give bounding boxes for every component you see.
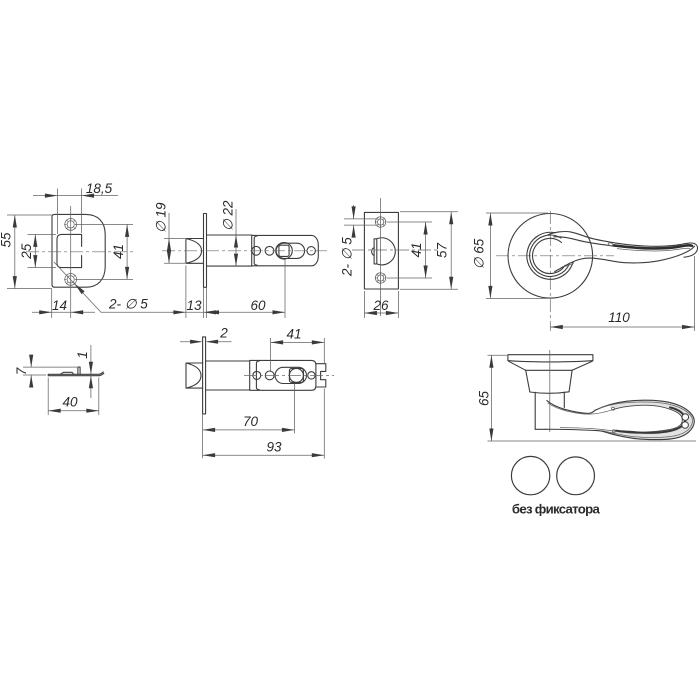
svg-text:60: 60 [250,298,266,313]
svg-text:55: 55 [0,232,14,248]
svg-text:14: 14 [52,298,67,313]
svg-text:26: 26 [372,298,389,313]
svg-text:41: 41 [286,327,301,342]
svg-text:∅ 65: ∅ 65 [472,238,487,269]
svg-text:93: 93 [266,439,282,454]
svg-text:25: 25 [19,243,34,260]
svg-text:∅ 19: ∅ 19 [154,202,169,233]
svg-text:40: 40 [62,395,78,410]
svg-text:7: 7 [14,367,29,375]
svg-text:13: 13 [186,298,202,313]
svg-text:41: 41 [111,244,126,259]
svg-text:1: 1 [75,351,90,359]
svg-text:2- ∅ 5: 2- ∅ 5 [340,237,355,277]
svg-text:18,5: 18,5 [86,181,113,196]
svg-text:2- ∅ 5: 2- ∅ 5 [108,297,148,312]
svg-text:70: 70 [243,414,259,429]
svg-text:без фиксатора: без фиксатора [512,502,601,517]
svg-text:∅ 22: ∅ 22 [221,200,236,231]
svg-text:65: 65 [477,391,492,407]
svg-text:41: 41 [409,242,424,257]
svg-text:57: 57 [435,243,450,259]
svg-text:110: 110 [608,310,630,325]
svg-text:2: 2 [219,326,228,341]
